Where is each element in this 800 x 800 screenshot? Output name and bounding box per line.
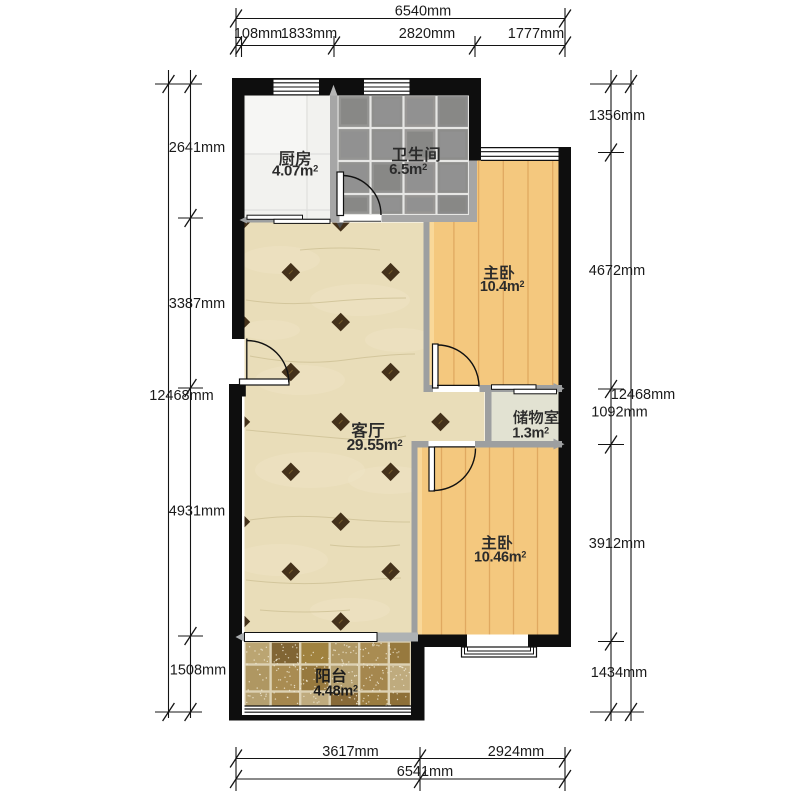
svg-text:108mm: 108mm [234, 26, 282, 42]
svg-text:29.55m2: 29.55m2 [347, 437, 403, 454]
svg-text:12468mm: 12468mm [611, 387, 675, 403]
svg-text:1092mm: 1092mm [591, 405, 647, 421]
svg-text:1777mm: 1777mm [508, 26, 564, 42]
svg-text:1434mm: 1434mm [591, 665, 647, 681]
svg-text:4.07m2: 4.07m2 [272, 163, 318, 180]
svg-text:4.48m2: 4.48m2 [313, 684, 358, 700]
svg-text:6.5m2: 6.5m2 [389, 161, 427, 178]
svg-text:3617mm: 3617mm [322, 744, 378, 760]
svg-text:10.4m2: 10.4m2 [480, 279, 525, 295]
svg-text:2820mm: 2820mm [399, 26, 455, 42]
svg-text:1833mm: 1833mm [281, 26, 337, 42]
svg-text:12468mm: 12468mm [149, 388, 213, 404]
svg-text:6541mm: 6541mm [397, 764, 453, 780]
svg-text:1.3m2: 1.3m2 [512, 426, 549, 442]
svg-text:2924mm: 2924mm [488, 744, 544, 760]
svg-text:3387mm: 3387mm [169, 296, 225, 312]
svg-text:1356mm: 1356mm [589, 108, 645, 124]
svg-text:10.46m2: 10.46m2 [474, 550, 526, 566]
svg-text:2641mm: 2641mm [169, 140, 225, 156]
svg-text:3912mm: 3912mm [589, 536, 645, 552]
svg-text:1508mm: 1508mm [170, 663, 226, 679]
svg-text:4931mm: 4931mm [169, 504, 225, 520]
svg-text:4672mm: 4672mm [589, 263, 645, 279]
svg-text:6540mm: 6540mm [395, 4, 451, 20]
